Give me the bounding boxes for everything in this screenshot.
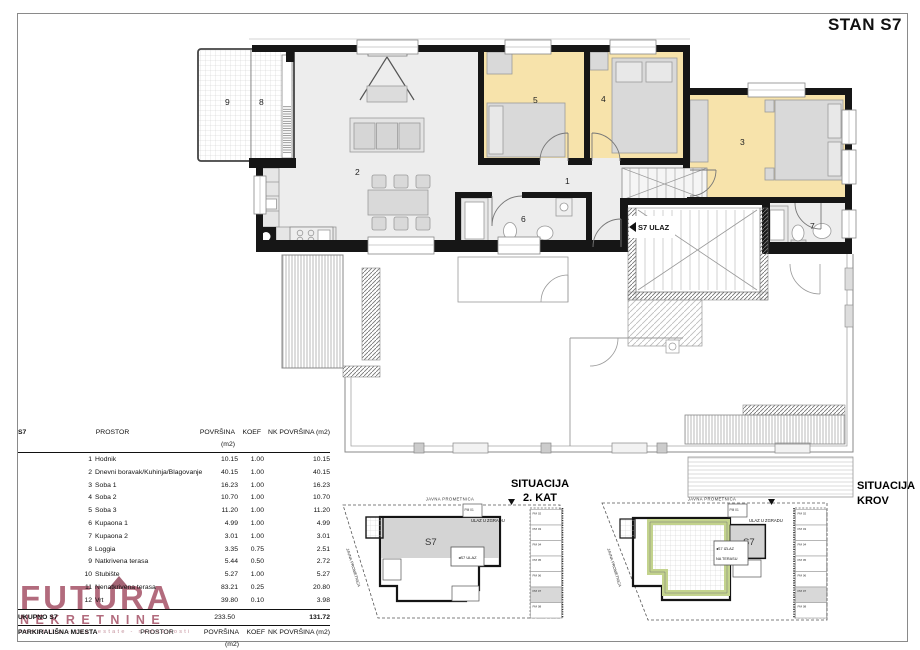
row-number: 7 <box>18 531 95 544</box>
entrance-note-left: ULAZ U ZGRADU <box>471 518 505 523</box>
row-nk: 3.01 <box>264 531 330 544</box>
table-row: 9 Natkrivena terasa 5.44 0.50 2.72 <box>18 556 330 569</box>
room-label-living: 2 <box>355 167 360 177</box>
unit-entrance-box-left: ◂S7 ULAZ <box>458 555 477 560</box>
row-name: Vrt <box>95 595 190 608</box>
row-number: 9 <box>18 556 95 569</box>
parking-cell-label: PM 03 <box>533 527 542 531</box>
row-koef: 1.00 <box>238 480 264 493</box>
areas-table: S7 PROSTOR POVRŠINA (m2) KOEF NK POVRŠIN… <box>18 427 330 650</box>
room-label-terasa: 9 <box>225 97 230 107</box>
room-label-hall: 1 <box>565 176 570 186</box>
parking-cell-label: PM 05 <box>798 558 807 562</box>
row-povrsina: 16.23 <box>190 480 238 493</box>
situation-right-title1: SITUACIJA <box>857 480 915 492</box>
table-row: 6 Kupaona 1 4.99 1.00 4.99 <box>18 518 330 531</box>
exit-box-line2: NA TERASU <box>716 557 738 561</box>
row-name: Kupaona 2 <box>95 531 190 544</box>
row-nk: 2.72 <box>264 556 330 569</box>
table-row: 7 Kupaona 2 3.01 1.00 3.01 <box>18 531 330 544</box>
parking-cell-label: PM 08 <box>798 605 807 609</box>
header-koef: KOEF <box>235 427 261 439</box>
table-row: 8 Loggia 3.35 0.75 2.51 <box>18 544 330 557</box>
header-prostor: PROSTOR <box>38 427 187 439</box>
row-povrsina: 10.70 <box>190 492 238 505</box>
parking-header-koef: KOEF <box>239 627 265 639</box>
row-koef: 1.00 <box>238 531 264 544</box>
header-povrsina: POVRŠINA (m2) <box>187 427 235 451</box>
row-name: Stubište <box>95 569 190 582</box>
row-name: Soba 3 <box>95 505 190 518</box>
row-number: 6 <box>18 518 95 531</box>
table-body: 1 Hodnik 10.15 1.00 10.15 2 Dnevni borav… <box>18 454 330 608</box>
table-row: 4 Soba 2 10.70 1.00 10.70 <box>18 492 330 505</box>
row-povrsina: 39.80 <box>190 595 238 608</box>
divider <box>18 609 330 610</box>
situation-right-title2: KROV <box>857 495 889 507</box>
parking-cell-label: PM 02 <box>798 512 807 516</box>
row-name: Natkrivena terasa <box>95 556 190 569</box>
row-number: 1 <box>18 454 95 467</box>
parking-cell-label: PM 08 <box>533 605 542 609</box>
parking-cell-label: PM 06 <box>533 574 542 578</box>
parking-cell-label: PM 07 <box>533 589 542 593</box>
site-plan-krov: SITUACIJA KROV JAVNA PROMETNICA JAVNA PR… <box>602 480 915 620</box>
row-nk: 40.15 <box>264 467 330 480</box>
pm01-label-left: PM 01 <box>465 508 474 512</box>
garden-area <box>688 457 853 497</box>
row-koef: 1.00 <box>238 518 264 531</box>
row-name: Nenatkrivena terasa <box>95 582 190 595</box>
divider <box>18 452 330 453</box>
row-povrsina: 10.15 <box>190 454 238 467</box>
row-povrsina: 3.35 <box>190 544 238 557</box>
parking-cell-label: PM 02 <box>533 512 542 516</box>
row-koef: 1.00 <box>238 569 264 582</box>
page: STAN S7 <box>0 0 920 650</box>
road-label-top-right: JAVNA PROMETNICA <box>688 497 736 502</box>
row-name: Soba 1 <box>95 480 190 493</box>
header-nk: NK POVRŠINA (m2) <box>261 427 330 439</box>
row-name: Soba 2 <box>95 492 190 505</box>
stairwell: S7 ULAZ <box>628 208 768 346</box>
row-nk: 4.99 <box>264 518 330 531</box>
parking-cell-label: PM 04 <box>533 543 542 547</box>
row-koef: 0.50 <box>238 556 264 569</box>
row-name: Kupaona 1 <box>95 518 190 531</box>
row-number: 12 <box>18 595 95 608</box>
row-nk: 10.70 <box>264 492 330 505</box>
parking-header: PARKIRALIŠNA MJESTA PROSTOR POVRŠINA (m2… <box>18 627 330 650</box>
row-nk: 11.20 <box>264 505 330 518</box>
parking-header-povrsina: POVRŠINA (m2) <box>191 627 239 650</box>
total-povrsina: 233.50 <box>187 611 235 624</box>
room-label-soba1: 3 <box>740 137 745 147</box>
room-label-soba2: 4 <box>601 94 606 104</box>
entrance-label: S7 ULAZ <box>638 223 670 232</box>
row-koef: 1.00 <box>238 505 264 518</box>
building-label-left: S7 <box>425 537 437 548</box>
total-nk: 131.72 <box>261 611 330 624</box>
apartment-stairs <box>622 168 707 200</box>
situation-left-title1: SITUACIJA <box>511 478 569 490</box>
row-koef: 1.00 <box>238 467 264 480</box>
table-row: 5 Soba 3 11.20 1.00 11.20 <box>18 505 330 518</box>
road-label-side-right: JAVNA PROMETNICA <box>606 548 623 588</box>
table-row: 10 Stubište 5.27 1.00 5.27 <box>18 569 330 582</box>
total-row: UKUPNO S7 233.50 131.72 <box>18 611 330 624</box>
exit-box-line1: ◂S7 IZLAZ <box>716 547 735 551</box>
row-povrsina: 83.21 <box>190 582 238 595</box>
parking-column-left: PM 02 PM 03 PM 04 PM 05 PM 06 PM 07 PM 0… <box>530 508 563 618</box>
situation-left-title2: 2. KAT <box>523 492 557 504</box>
pm01-label-right: PM 01 <box>730 508 739 512</box>
entrance-note-right: ULAZ U ZGRADU <box>749 518 783 523</box>
parking-cell-label: PM 04 <box>798 543 807 547</box>
row-nk: 5.27 <box>264 569 330 582</box>
row-koef: 1.00 <box>238 454 264 467</box>
row-name: Hodnik <box>95 454 190 467</box>
row-number: 3 <box>18 480 95 493</box>
table-unit-label: S7 <box>18 427 38 439</box>
total-label: UKUPNO S7 <box>18 611 187 624</box>
row-number: 8 <box>18 544 95 557</box>
room-label-loggia: 8 <box>259 97 264 107</box>
row-povrsina: 40.15 <box>190 467 238 480</box>
row-nk: 20.80 <box>264 582 330 595</box>
table-row: 11 Nenatkrivena terasa 83.21 0.25 20.80 <box>18 582 330 595</box>
table-header: S7 PROSTOR POVRŠINA (m2) KOEF NK POVRŠIN… <box>18 427 330 451</box>
north-arrow-icon <box>508 499 515 505</box>
row-koef: 0.10 <box>238 595 264 608</box>
row-koef: 1.00 <box>238 492 264 505</box>
row-number: 2 <box>18 467 95 480</box>
parking-cell-label: PM 05 <box>533 558 542 562</box>
row-povrsina: 11.20 <box>190 505 238 518</box>
table-row: 1 Hodnik 10.15 1.00 10.15 <box>18 454 330 467</box>
row-povrsina: 5.27 <box>190 569 238 582</box>
parking-cell-label: PM 03 <box>798 527 807 531</box>
table-row: 2 Dnevni boravak/Kuhinja/Blagovanje 40.1… <box>18 467 330 480</box>
parking-cell-label: PM 07 <box>798 589 807 593</box>
row-number: 4 <box>18 492 95 505</box>
row-povrsina: 4.99 <box>190 518 238 531</box>
terrace-loggia <box>198 49 294 161</box>
parking-header-nk: NK POVRŠINA (m2) <box>265 627 330 639</box>
parking-cell-label: PM 06 <box>798 574 807 578</box>
divider <box>18 625 330 626</box>
row-number: 11 <box>18 582 95 595</box>
row-nk: 16.23 <box>264 480 330 493</box>
row-number: 10 <box>18 569 95 582</box>
row-nk: 3.98 <box>264 595 330 608</box>
road-label-top-left: JAVNA PROMETNICA <box>426 497 474 502</box>
room-label-kupaona2: 7 <box>810 221 815 231</box>
road-label-side-left: JAVNA PROMETNICA <box>345 548 362 588</box>
parking-column-right: PM 02 PM 03 PM 04 PM 05 PM 06 PM 07 PM 0… <box>794 508 827 618</box>
row-nk: 2.51 <box>264 544 330 557</box>
site-plan-2kat: SITUACIJA 2. KAT JAVNA PROMETNICA JAVNA … <box>343 478 569 618</box>
room-label-kupaona1: 6 <box>521 214 526 224</box>
table-row: 3 Soba 1 16.23 1.00 16.23 <box>18 480 330 493</box>
row-name: Dnevni boravak/Kuhinja/Blagovanje <box>95 467 190 480</box>
parking-header-prostor: PROSTOR <box>123 627 191 639</box>
row-koef: 0.25 <box>238 582 264 595</box>
row-number: 5 <box>18 505 95 518</box>
row-povrsina: 3.01 <box>190 531 238 544</box>
row-koef: 0.75 <box>238 544 264 557</box>
parking-section-label: PARKIRALIŠNA MJESTA <box>18 627 123 639</box>
north-arrow-icon <box>768 499 775 505</box>
row-povrsina: 5.44 <box>190 556 238 569</box>
room-label-soba3: 5 <box>533 95 538 105</box>
row-name: Loggia <box>95 544 190 557</box>
row-nk: 10.15 <box>264 454 330 467</box>
table-row: 12 Vrt 39.80 0.10 3.98 <box>18 595 330 608</box>
